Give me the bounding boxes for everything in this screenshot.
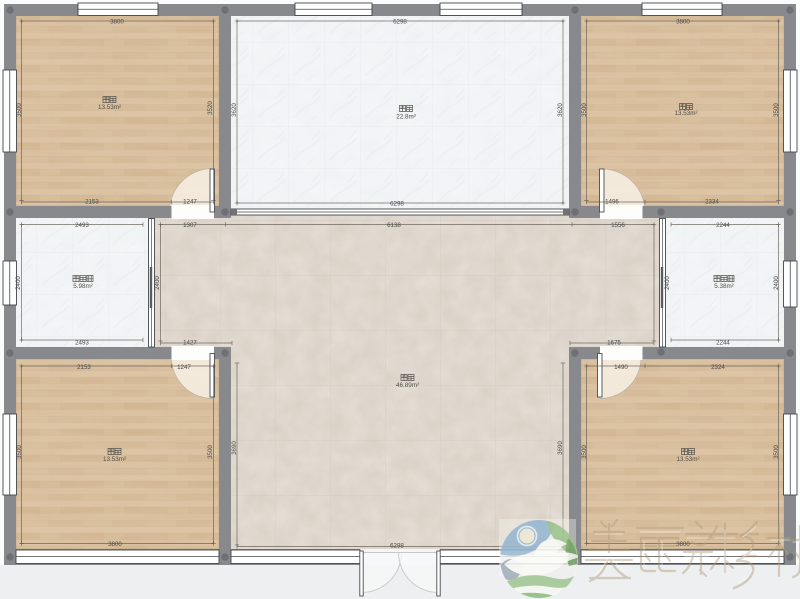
svg-text:6138: 6138: [387, 222, 401, 229]
svg-text:3500: 3500: [581, 103, 588, 117]
svg-text:2400: 2400: [154, 276, 161, 290]
svg-text:13.53m²: 13.53m²: [98, 104, 121, 111]
svg-text:2244: 2244: [716, 340, 730, 347]
svg-text:3500: 3500: [207, 445, 214, 459]
svg-text:2153: 2153: [85, 199, 99, 206]
svg-text:2493: 2493: [75, 222, 89, 229]
svg-text:3800: 3800: [108, 541, 122, 548]
svg-text:2400: 2400: [664, 276, 671, 290]
svg-text:3520: 3520: [207, 101, 214, 115]
svg-text:3500: 3500: [773, 445, 780, 459]
svg-text:46.89m²: 46.89m²: [396, 382, 419, 389]
svg-text:1427: 1427: [183, 340, 197, 347]
svg-text:1307: 1307: [183, 222, 197, 229]
svg-text:22.8m²: 22.8m²: [396, 114, 416, 121]
svg-text:3500: 3500: [16, 445, 23, 459]
svg-text:2324: 2324: [711, 364, 725, 371]
svg-text:13.53m²: 13.53m²: [103, 456, 126, 463]
svg-text:3500: 3500: [16, 103, 23, 117]
svg-text:2400: 2400: [15, 276, 22, 290]
svg-text:2400: 2400: [773, 276, 780, 290]
svg-text:3800: 3800: [110, 19, 124, 26]
svg-text:3800: 3800: [676, 19, 690, 26]
svg-text:3500: 3500: [581, 445, 588, 459]
svg-text:3690: 3690: [231, 441, 238, 455]
svg-text:3620: 3620: [557, 103, 564, 117]
svg-text:1496: 1496: [605, 199, 619, 206]
svg-text:2244: 2244: [716, 222, 730, 229]
svg-text:3620: 3620: [231, 103, 238, 117]
svg-text:3500: 3500: [773, 103, 780, 117]
svg-text:2153: 2153: [77, 364, 91, 371]
svg-text:1675: 1675: [607, 340, 621, 347]
svg-text:2493: 2493: [75, 340, 89, 347]
svg-text:2334: 2334: [705, 199, 719, 206]
svg-text:6298: 6298: [390, 543, 404, 550]
svg-text:5.38m²: 5.38m²: [714, 283, 734, 290]
svg-text:6298: 6298: [390, 201, 404, 208]
svg-text:1556: 1556: [611, 222, 625, 229]
svg-text:5.98m²: 5.98m²: [73, 283, 93, 290]
svg-text:13.53m²: 13.53m²: [674, 110, 697, 117]
svg-text:1247: 1247: [183, 199, 197, 206]
svg-text:13.53m²: 13.53m²: [676, 456, 699, 463]
svg-text:1247: 1247: [177, 364, 191, 371]
svg-text:6298: 6298: [393, 19, 407, 26]
svg-text:3690: 3690: [557, 441, 564, 455]
svg-text:1490: 1490: [614, 364, 628, 371]
